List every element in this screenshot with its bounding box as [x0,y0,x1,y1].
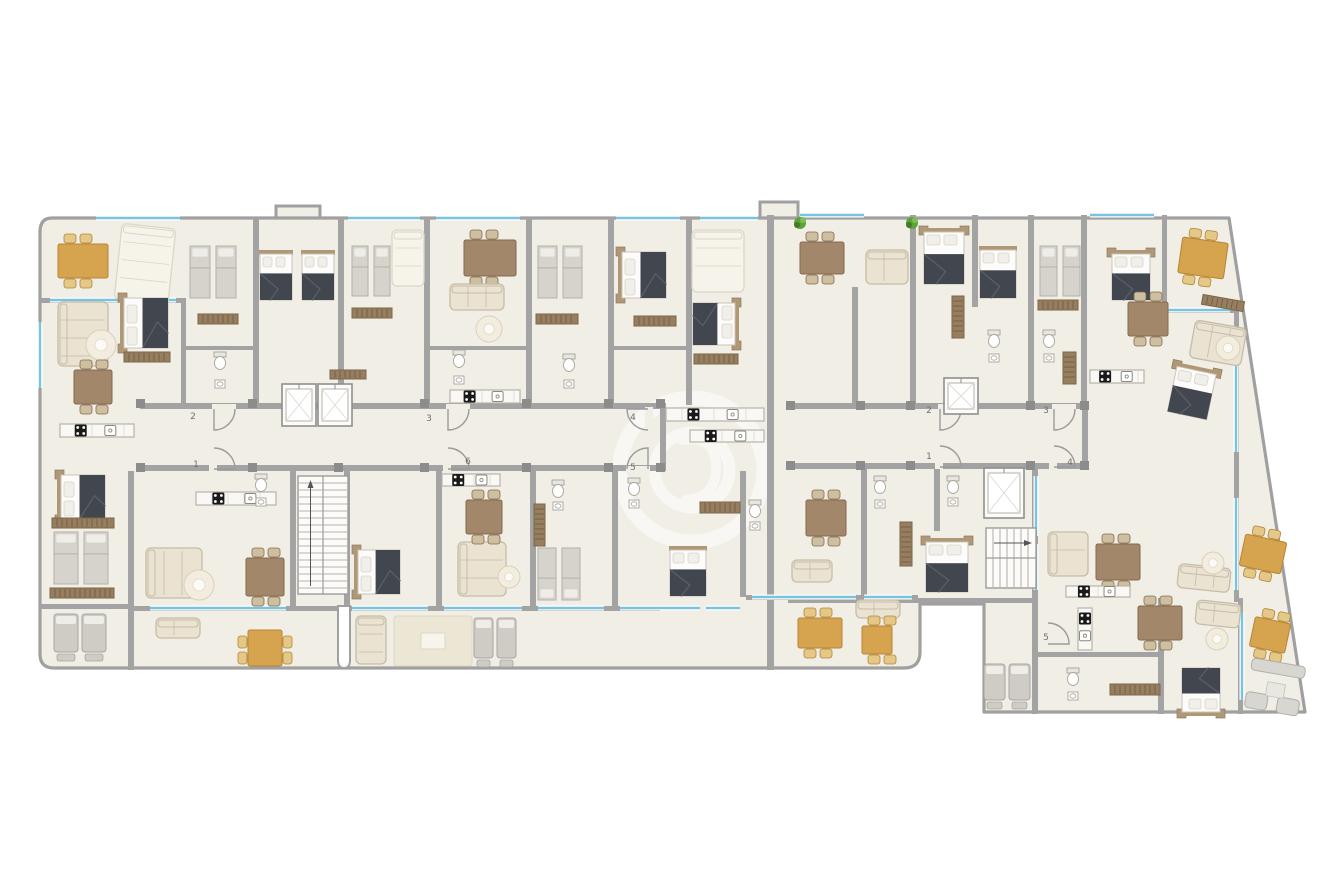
wall-pier [1026,401,1035,410]
sink-icon [1104,587,1115,597]
wall [1028,215,1034,407]
elevator-icon [984,468,1024,518]
elevator-icon [944,378,978,414]
unit-number-label: 3 [426,414,432,424]
sofa [792,560,832,582]
floor-plan-svg: 23416523145 [0,0,1320,895]
wall-pier [248,399,257,408]
sofa [156,618,200,638]
stove-icon [705,430,717,442]
wall [608,218,614,405]
wardrobe [352,308,392,318]
area-rug [394,616,472,666]
wardrobe [634,316,676,326]
double-bed [616,247,667,303]
wall [660,403,666,471]
kitchen-counter [442,474,500,486]
round-rug [1202,552,1224,574]
sink-icon [1080,631,1091,641]
plant-icon [794,217,806,229]
wall-pier [786,461,795,470]
double-bed [979,246,1017,298]
kitchen-counter [450,390,520,403]
wardrobe [198,314,238,324]
wall [972,215,978,307]
double-bed [921,536,973,592]
corner-sofa [1048,532,1088,576]
wall [186,346,256,350]
sink-icon [735,431,746,441]
bathroom-fixtures [628,478,640,508]
kitchen-counter [1090,370,1144,383]
bathroom-fixtures [947,476,959,506]
double-bed [352,545,401,599]
wardrobe [952,296,964,338]
double-bed [301,250,335,300]
wall-pier [656,399,665,408]
plant-icon [906,217,918,229]
wardrobe [534,504,545,546]
wall-pier [604,399,613,408]
wall [526,218,532,405]
sink-icon [629,500,639,508]
sofa [1195,600,1241,628]
wall-pier [248,463,257,472]
wall [290,471,296,608]
terrace-notch [338,606,350,668]
wall [1038,652,1160,657]
wall-pier [334,463,343,472]
kitchen-counter [60,424,134,437]
wall [852,287,858,405]
sink-icon [245,494,256,504]
wall-pier [522,463,531,472]
wall [430,346,528,350]
wall-pier [420,463,429,472]
corner-sofa [458,542,506,596]
sofa [856,600,900,618]
wall [128,471,134,670]
wall-pier [420,399,429,408]
wall [740,471,746,597]
sink-icon [1044,354,1054,362]
unit-number-label: 4 [1067,458,1073,468]
unit-number-label: 2 [926,406,932,416]
wall [1162,215,1167,313]
kitchen-counter [1078,608,1092,650]
bathroom-fixtures [552,480,564,510]
wall-pier [786,401,795,410]
sink-icon [476,475,487,485]
round-rug [1206,628,1228,650]
wardrobe [1110,684,1160,695]
wall [436,471,442,608]
double-bed [1177,668,1225,719]
sink-icon [256,498,266,506]
round-rug [476,316,502,342]
sink-icon [1121,372,1132,382]
wall [767,215,774,670]
stove-icon [464,391,476,403]
wall-pier [522,399,531,408]
unit-number-label: 5 [1043,633,1049,643]
wall [1082,403,1088,469]
wardrobe [124,352,170,362]
wardrobe [536,314,578,324]
wall-pier [856,401,865,410]
round-rug [184,570,214,600]
sink-icon [492,392,503,402]
sink-icon [105,426,116,436]
sink-icon [875,500,885,508]
wall [608,346,688,350]
wall-pier [1080,401,1089,410]
elevator-icon [318,384,352,426]
round-rug [86,330,116,360]
sink-icon [553,502,563,510]
sink-icon [727,410,738,420]
wall [424,218,430,405]
sink-icon [1068,692,1078,700]
kitchen-counter [1066,586,1130,598]
corner-sofa [866,250,908,284]
elevator-icon [282,384,316,426]
wardrobe [52,518,114,528]
wardrobe [694,354,738,364]
unit-number-label: 6 [465,457,471,467]
double-bed [692,298,741,350]
wall [612,471,618,608]
outdoor-sofa [392,230,424,286]
sofa [356,616,386,664]
double-bed [919,226,969,284]
wall [861,469,867,600]
double-bed [55,470,106,524]
wall [934,469,940,531]
sink-icon [948,498,958,506]
wall [686,218,692,405]
wardrobe [900,522,912,566]
wardrobe [700,502,740,513]
wardrobe [330,370,366,379]
sink-icon [750,522,760,530]
unit-number-label: 4 [630,413,636,423]
wall-pier [604,463,613,472]
sink-icon [989,354,999,362]
round-rug [1216,336,1240,360]
stove-icon [452,474,464,486]
wall [910,215,916,407]
unit-number-label: 3 [1043,406,1049,416]
kitchen-counter [690,430,764,442]
double-bed [259,250,293,300]
double-bed [1107,248,1155,300]
sink-icon [564,380,574,388]
unit-number-label: 2 [190,412,196,422]
round-rug [498,566,520,588]
unit-number-label: 1 [926,452,932,462]
wall [140,465,664,471]
wall-pier [136,463,145,472]
wall-pier [1026,461,1035,470]
stove-icon [1078,586,1090,598]
wall [40,604,132,609]
stove-icon [687,409,699,421]
sink-icon [454,376,464,384]
outdoor-sofa [114,223,176,304]
wall-pier [136,399,145,408]
unit-number-label: 1 [193,460,199,470]
wardrobe [1063,352,1076,384]
unit-number-label: 5 [630,463,636,473]
stove-icon [1099,371,1111,383]
stove-icon [1079,613,1091,625]
sofa [450,284,504,310]
wall-pier [906,461,915,470]
sink-icon [215,380,225,388]
stove-icon [212,493,224,505]
staircase-icon [986,528,1036,588]
outdoor-sofa [692,230,744,292]
floor-plan: 23416523145 [0,0,1320,895]
wall-pier [906,401,915,410]
kitchen-counter [666,408,764,421]
wall-pier [856,461,865,470]
wall [253,218,259,405]
wardrobe [50,588,114,598]
staircase-icon [298,476,348,594]
double-bed [118,293,169,353]
wall-pier [656,463,665,472]
double-bed [669,546,707,596]
bathroom-fixtures [749,500,761,530]
wall-pier [1080,461,1089,470]
wall [181,300,186,405]
wall [1081,215,1087,407]
stove-icon [75,425,87,437]
wardrobe [1038,300,1078,310]
